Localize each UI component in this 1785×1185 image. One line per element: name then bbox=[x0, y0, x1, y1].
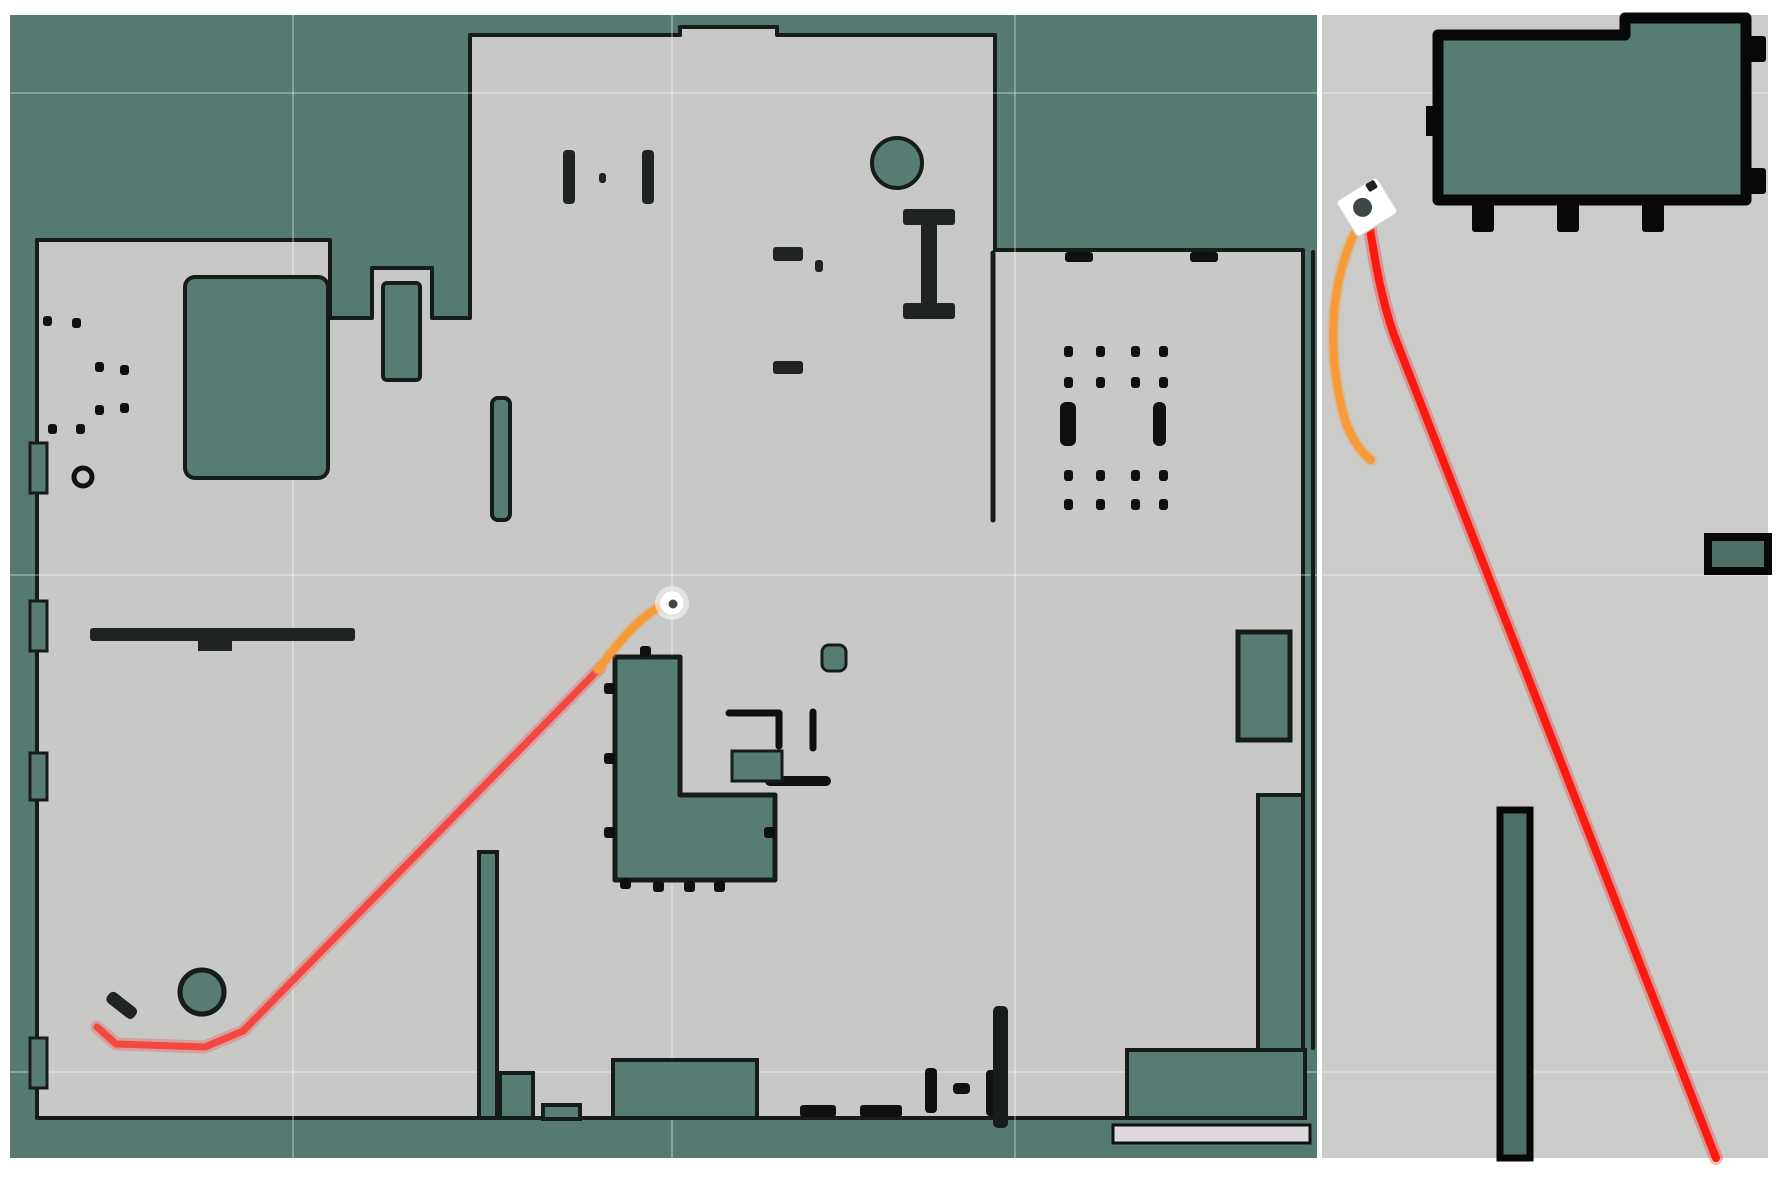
lband-vertical bbox=[1258, 795, 1303, 1053]
pillar-dots-right-room-dot bbox=[1131, 346, 1140, 357]
pillar-bar-left bbox=[563, 150, 575, 204]
right-map-panel[interactable] bbox=[1322, 15, 1768, 1158]
pillar-dots-right-room-dot bbox=[1096, 499, 1105, 510]
island-tabs-dot bbox=[714, 881, 725, 892]
wall-notch-4 bbox=[30, 1038, 47, 1088]
room-tabs-right-dot bbox=[1746, 36, 1766, 62]
wall-tabs-top-dot bbox=[1190, 252, 1218, 262]
pillar-dots-topleft-dot bbox=[95, 405, 104, 415]
pillar-dots-right-room-dot bbox=[1131, 470, 1140, 481]
wall-bar-bottom bbox=[1500, 810, 1530, 1158]
pillar-dots-right-room-dot bbox=[1159, 470, 1168, 481]
door-strip bbox=[1113, 1125, 1310, 1143]
pillar-dots-right-room-dot bbox=[1131, 377, 1140, 388]
room-tabs-right-dot bbox=[1746, 168, 1766, 194]
floor-tick-b bbox=[953, 1083, 970, 1094]
pillar-dots-right-room-dot bbox=[1096, 377, 1105, 388]
wall-stub-right bbox=[1708, 537, 1768, 571]
pillar-dots-right-room-dot bbox=[1096, 470, 1105, 481]
pillar-dots-right-room-dot bbox=[1064, 377, 1073, 388]
pillar-dots-topleft-dot bbox=[95, 362, 104, 372]
room-outline bbox=[1438, 18, 1746, 200]
bump-a bbox=[500, 1073, 533, 1118]
pillar-dots-topleft-dot bbox=[120, 403, 129, 413]
cabinet-top bbox=[383, 283, 420, 380]
shelf-step bbox=[198, 640, 232, 651]
pillar-dots-topleft-dot bbox=[43, 316, 52, 326]
robot-marker[interactable] bbox=[655, 586, 689, 620]
pillar-bar-right bbox=[642, 150, 654, 204]
pillar-dots-right-room-dot bbox=[1131, 499, 1140, 510]
room-tabs-bottom-dot bbox=[1642, 200, 1664, 232]
island-tabs-dot bbox=[653, 881, 664, 892]
pillar-dots-right-room-dot bbox=[1064, 470, 1073, 481]
desk-mark bbox=[773, 247, 803, 261]
left-map-panel[interactable] bbox=[10, 15, 1317, 1158]
small-ring bbox=[74, 468, 92, 486]
ibeam-bar bbox=[921, 216, 937, 310]
round-column bbox=[872, 138, 922, 188]
room-tabs-bottom-dot bbox=[1472, 200, 1494, 232]
bracket-b bbox=[1153, 402, 1166, 446]
room-tabs-bottom-dot bbox=[1557, 200, 1579, 232]
bracket-a bbox=[1060, 402, 1076, 446]
pillar-dots-right-room-dot bbox=[1096, 346, 1105, 357]
wall-notch-2 bbox=[30, 601, 47, 651]
island-tabs-dot bbox=[604, 827, 615, 838]
stool bbox=[822, 645, 846, 671]
room-tab-left bbox=[1426, 106, 1440, 136]
pillar-dots-right-room-dot bbox=[1159, 346, 1168, 357]
counter-box bbox=[732, 751, 782, 781]
island-tabs-dot bbox=[640, 646, 651, 657]
lband-horizontal bbox=[1127, 1050, 1305, 1118]
island-tabs-dot bbox=[620, 878, 631, 889]
bump-b bbox=[543, 1105, 580, 1119]
wall-segment-b bbox=[479, 852, 497, 1118]
wall-notch-3 bbox=[30, 753, 47, 800]
stage-block bbox=[613, 1060, 757, 1118]
map-canvas bbox=[0, 0, 1785, 1185]
island-tabs-dot bbox=[604, 753, 615, 764]
floor-dash-b bbox=[860, 1105, 902, 1117]
shelf-bar bbox=[90, 628, 355, 641]
pillar-dots-topleft-dot bbox=[48, 424, 57, 434]
pillar-dots-right-room-dot bbox=[1159, 377, 1168, 388]
pillar-dots-topleft-dot bbox=[76, 424, 85, 434]
wall-segment-a bbox=[492, 398, 510, 520]
robot-center bbox=[669, 600, 678, 609]
wall-segment-c bbox=[993, 1006, 1008, 1128]
desk-mark-2 bbox=[773, 361, 803, 374]
wall-tabs-top-dot bbox=[1065, 252, 1093, 262]
island-tabs-dot bbox=[604, 683, 615, 694]
pillar-dots-topleft-dot bbox=[72, 318, 81, 328]
inner-room-topleft bbox=[185, 277, 328, 478]
pillar-dots-right-room-dot bbox=[1159, 499, 1168, 510]
pillar-dots-right-room-dot bbox=[1064, 499, 1073, 510]
pillar-dots-topleft-dot bbox=[120, 365, 129, 375]
ibeam-cap-bottom bbox=[903, 303, 955, 319]
desk-dot bbox=[815, 260, 823, 272]
cabinet-right-room bbox=[1238, 632, 1290, 740]
floor-dash-a bbox=[800, 1105, 836, 1117]
island-tabs-dot bbox=[764, 827, 775, 838]
floor-tick-a bbox=[925, 1068, 937, 1113]
pillar-dot bbox=[599, 173, 606, 183]
map-visualization bbox=[0, 0, 1785, 1185]
pillar-dots-right-room-dot bbox=[1064, 346, 1073, 357]
island-tabs-dot bbox=[684, 881, 695, 892]
wall-notch-1 bbox=[30, 443, 47, 493]
round-obstacle bbox=[180, 970, 224, 1014]
